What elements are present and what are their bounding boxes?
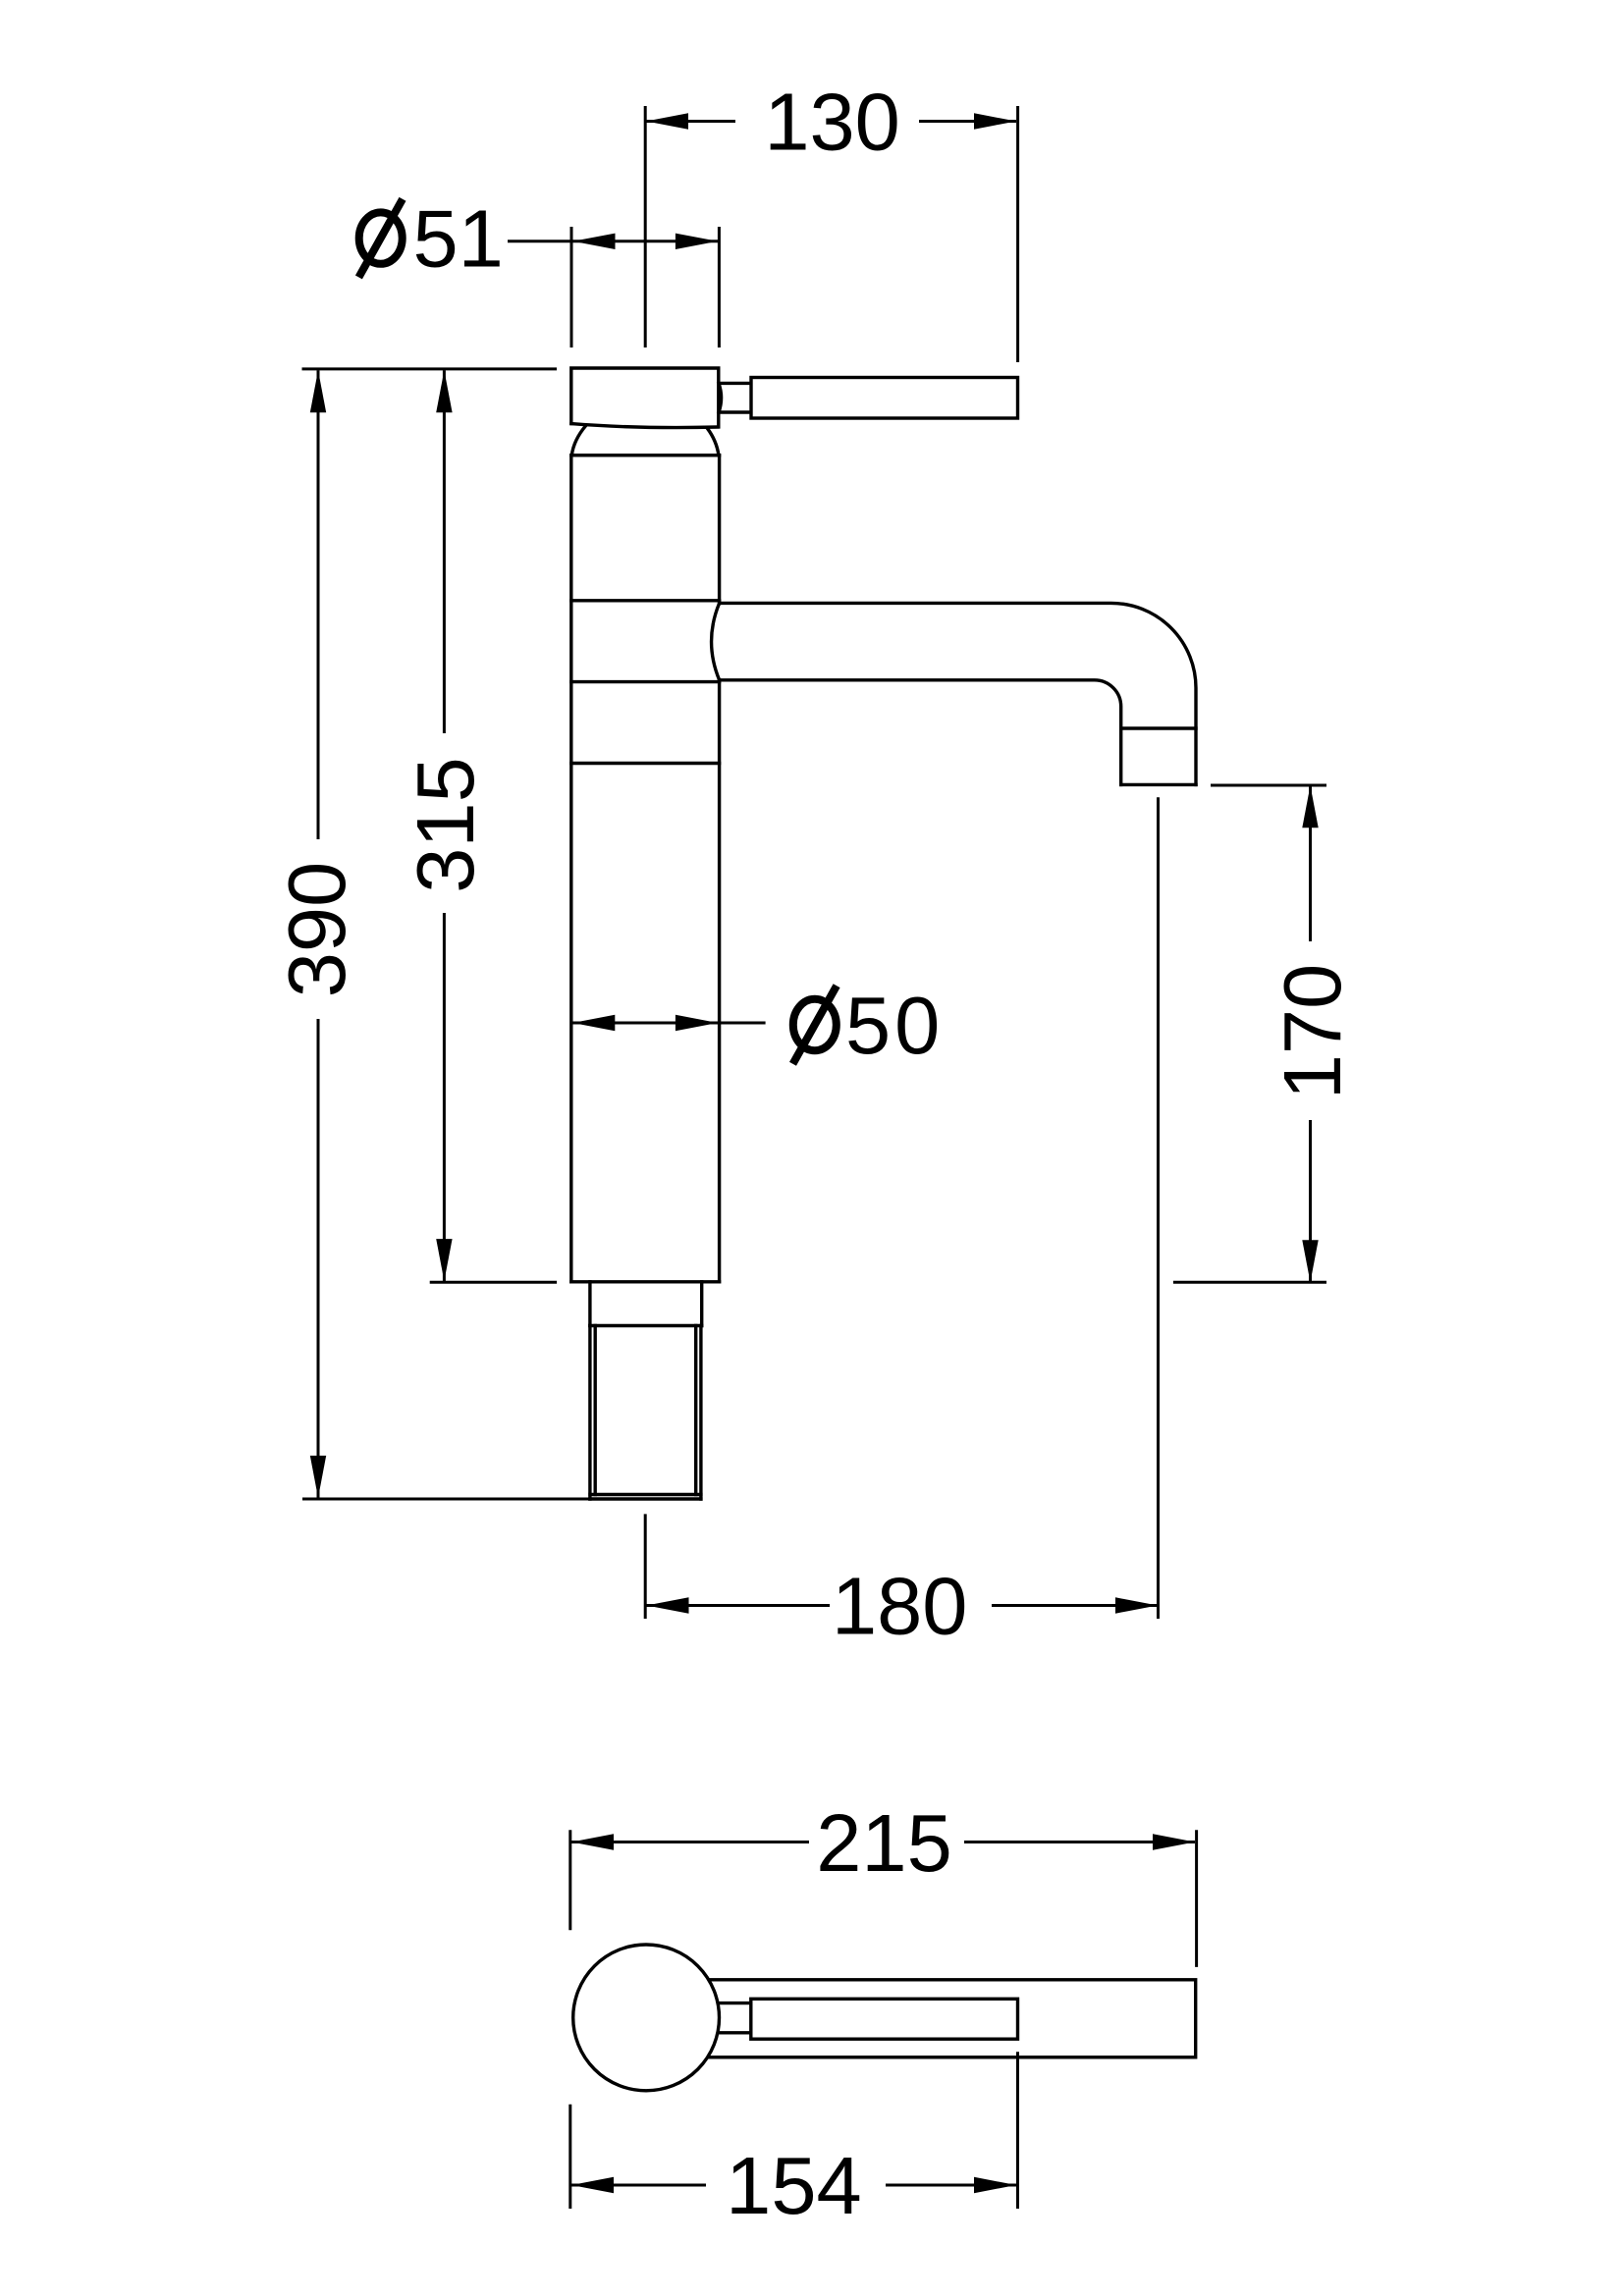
svg-text:215: 215 — [816, 1797, 951, 1889]
svg-text:170: 170 — [1267, 964, 1358, 1099]
svg-text:154: 154 — [726, 2140, 861, 2231]
svg-text:130: 130 — [764, 77, 899, 168]
svg-text:180: 180 — [832, 1561, 967, 1652]
svg-text:50: 50 — [845, 980, 944, 1071]
svg-text:390: 390 — [271, 862, 362, 997]
svg-text:51: 51 — [413, 193, 504, 285]
svg-text:315: 315 — [400, 757, 491, 892]
